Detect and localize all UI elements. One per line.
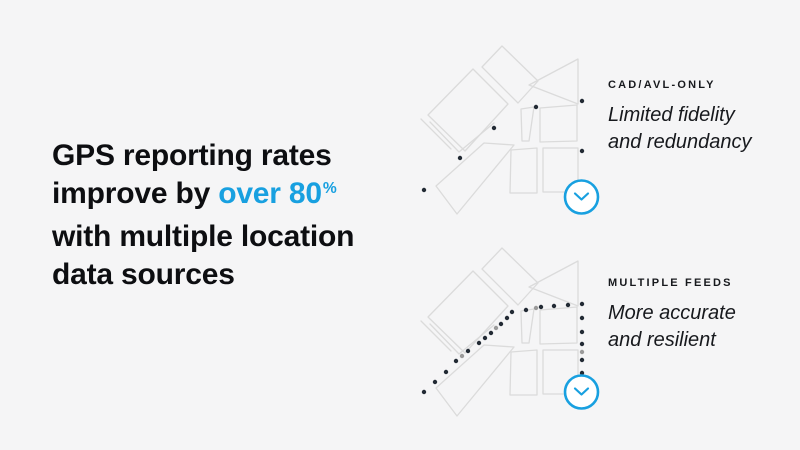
headline-highlight: over 80 [218, 177, 322, 210]
gps-point [539, 305, 543, 309]
description-line: and redundancy [608, 129, 788, 156]
description-line: Limited fidelity [608, 102, 788, 129]
headline-line-2: improve by over 80% [52, 175, 422, 218]
cad-avl-panel: CAD/AVL-ONLY Limited fidelity and redund… [608, 79, 788, 156]
gps-point [580, 302, 584, 306]
gps-point [534, 306, 538, 310]
percent-superscript: % [323, 180, 337, 197]
gps-point [580, 342, 584, 346]
gps-point [580, 358, 584, 362]
multiple-feeds-map [408, 230, 608, 425]
gps-point [444, 370, 448, 374]
gps-point [433, 380, 437, 384]
gps-point [422, 188, 426, 192]
description-line: and resilient [608, 327, 788, 354]
gps-point [580, 149, 584, 153]
street-map-illustration [421, 46, 578, 214]
multiple-feeds-panel: MULTIPLE FEEDS More accurate and resilie… [608, 277, 788, 354]
panel-description: Limited fidelity and redundancy [608, 102, 788, 156]
gps-point [422, 390, 426, 394]
gps-point [489, 331, 493, 335]
gps-point [566, 303, 570, 307]
gps-point [458, 156, 462, 160]
gps-point [460, 354, 464, 358]
panel-label: CAD/AVL-ONLY [608, 79, 788, 91]
gps-point [580, 316, 584, 320]
headline-line-2-prefix: improve by [52, 177, 218, 210]
panel-description: More accurate and resilient [608, 300, 788, 354]
gps-point [477, 341, 481, 345]
cad-avl-only-map [408, 28, 608, 223]
gps-point [524, 308, 528, 312]
gps-point [534, 105, 538, 109]
gps-point [580, 99, 584, 103]
gps-point [510, 310, 514, 314]
gps-point [580, 350, 584, 354]
gps-point [552, 304, 556, 308]
gps-point [505, 316, 509, 320]
gps-point [492, 126, 496, 130]
street-map-illustration [421, 248, 578, 416]
scroll-chevron-badge[interactable] [565, 376, 598, 409]
gps-point [466, 349, 470, 353]
gps-dots-dense [422, 302, 584, 394]
headline-line-4: data sources [52, 256, 422, 294]
gps-point [580, 330, 584, 334]
gps-point [483, 336, 487, 340]
headline-line-1: GPS reporting rates [52, 137, 422, 175]
headline-line-3: with multiple location [52, 218, 422, 256]
headline: GPS reporting rates improve by over 80% … [52, 137, 422, 294]
scroll-chevron-badge[interactable] [565, 181, 598, 214]
gps-point [494, 326, 498, 330]
gps-point [499, 322, 503, 326]
gps-point [454, 359, 458, 363]
gps-dots-sparse [422, 99, 584, 192]
panel-label: MULTIPLE FEEDS [608, 277, 788, 289]
description-line: More accurate [608, 300, 788, 327]
slide: GPS reporting rates improve by over 80% … [0, 0, 800, 450]
